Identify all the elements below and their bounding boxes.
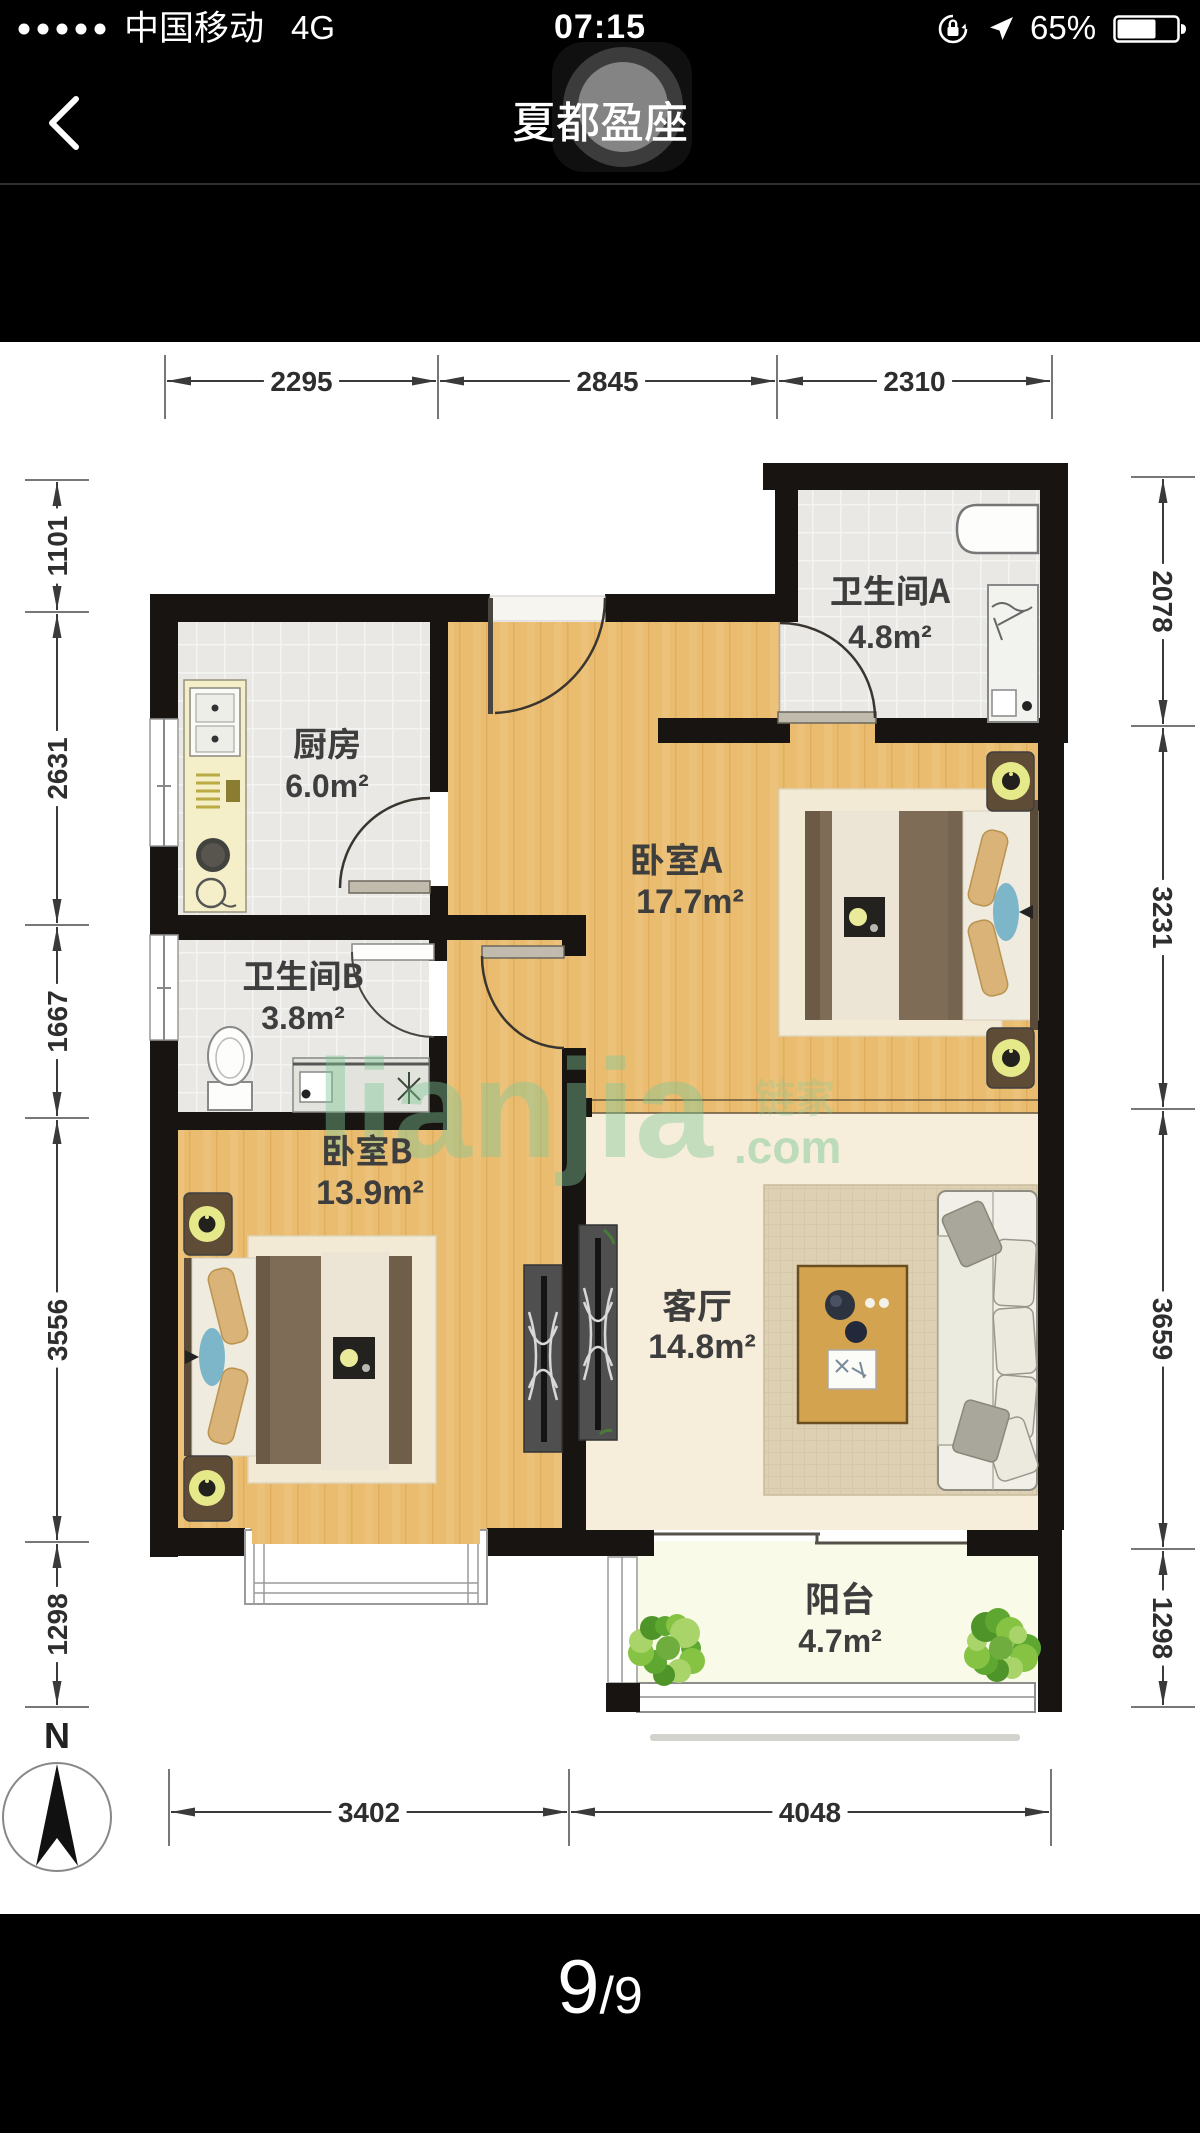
svg-text:3556: 3556 <box>42 1299 73 1361</box>
svg-text:1298: 1298 <box>42 1593 73 1655</box>
svg-text:1101: 1101 <box>42 516 73 577</box>
svg-text:1667: 1667 <box>42 990 73 1052</box>
svg-text:3231: 3231 <box>1147 886 1178 948</box>
svg-text:6.0m²: 6.0m² <box>285 768 369 804</box>
svg-text:13.9m²: 13.9m² <box>316 1174 424 1212</box>
svg-text:2078: 2078 <box>1147 570 1178 632</box>
svg-text:1298: 1298 <box>1147 1597 1178 1659</box>
svg-text:14.8m²: 14.8m² <box>648 1328 756 1366</box>
svg-text:.com: .com <box>734 1121 841 1173</box>
svg-text:3402: 3402 <box>338 1797 400 1828</box>
svg-text:4048: 4048 <box>779 1797 841 1828</box>
svg-text:2295: 2295 <box>270 366 332 397</box>
svg-text:17.7m²: 17.7m² <box>636 883 744 921</box>
svg-text:3.8m²: 3.8m² <box>261 1000 345 1036</box>
svg-text:4.8m²: 4.8m² <box>848 619 932 655</box>
svg-text:N: N <box>44 1715 70 1756</box>
svg-text:3659: 3659 <box>1147 1298 1178 1360</box>
svg-text:2310: 2310 <box>883 366 945 397</box>
svg-text:4.7m²: 4.7m² <box>798 1623 882 1659</box>
svg-text:2845: 2845 <box>576 366 638 397</box>
svg-text:2631: 2631 <box>42 737 73 799</box>
